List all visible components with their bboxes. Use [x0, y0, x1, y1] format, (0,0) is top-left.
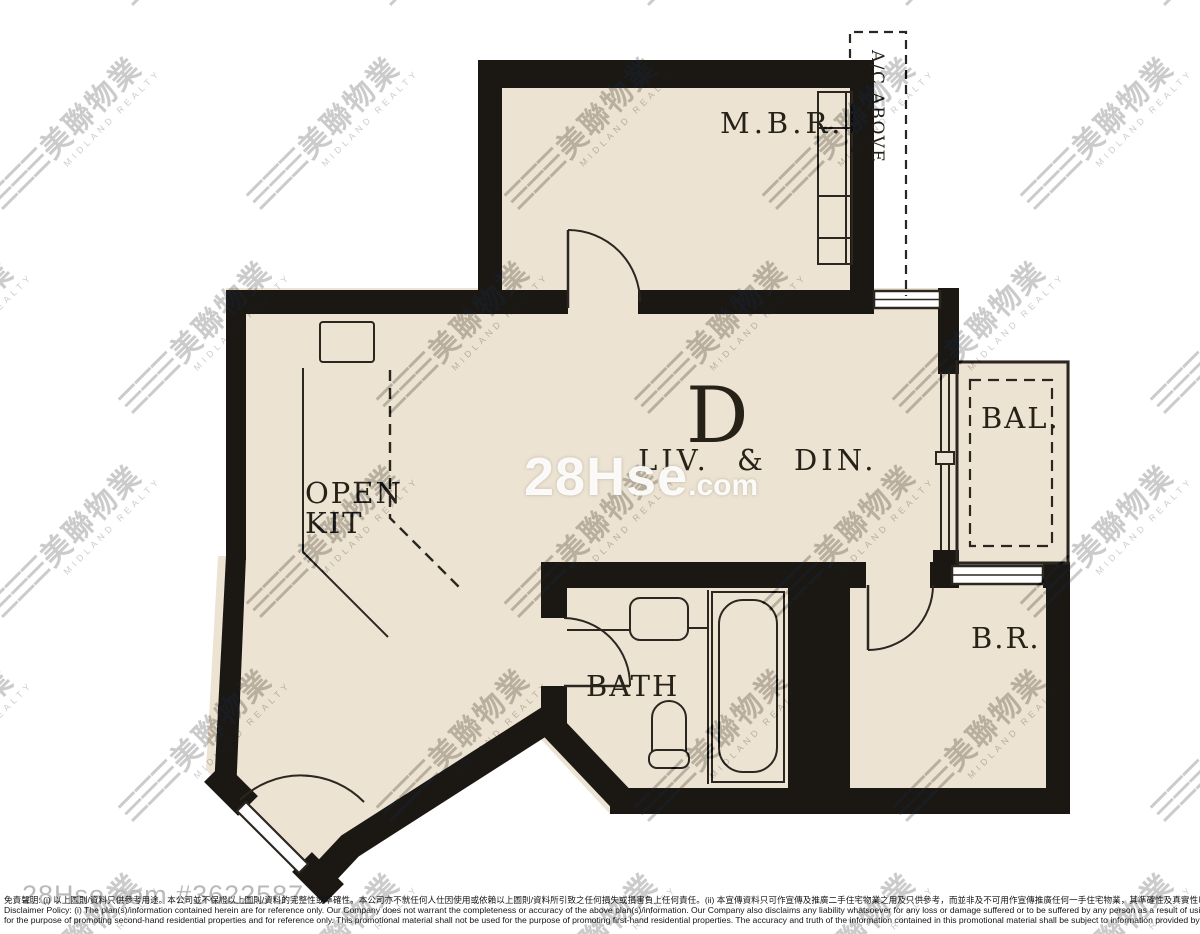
wall-right-lower: [1046, 562, 1070, 814]
room-label-openkit-1: OPEN: [305, 476, 403, 510]
window-living-north: [874, 291, 940, 308]
wall-bath-br-divider: [788, 562, 850, 792]
room-label-balcony: BAL.: [981, 401, 1060, 435]
room-label-mbr: M.B.R.: [720, 106, 845, 140]
window-bedroom: [952, 566, 1043, 584]
wall-kitchen-left: [226, 290, 246, 560]
wall-br-top-a: [848, 562, 866, 588]
wall-top-band-right: [638, 290, 874, 314]
disclaimer-line-en-2: for the purpose of promoting second-hand…: [4, 916, 1198, 926]
wall-mbr-top: [478, 60, 874, 88]
room-label-openkit-2: KIT: [305, 506, 363, 540]
room-label-bedroom: B.R.: [971, 621, 1041, 655]
wall-mbr-left: [478, 60, 502, 312]
wall-bath-left-lower: [541, 686, 567, 732]
disclaimer: 免責聲明: (i) 以上圖則/資料只供參考用途。本公司並不保證以上圖則/資料的完…: [4, 896, 1198, 925]
floorplan-drawing: D LIV. & DIN. M.B.R. OPEN KIT BATH BAL. …: [0, 0, 1200, 934]
wall-bottom: [610, 788, 1070, 814]
room-label-ac-above: A/C ABOVE: [867, 49, 887, 163]
wall-bath-left-upper: [541, 586, 567, 618]
wall-top-band-left: [226, 290, 568, 314]
room-label-living: LIV. & DIN.: [638, 443, 878, 477]
room-label-bath: BATH: [586, 669, 679, 703]
floorplan-page: D LIV. & DIN. M.B.R. OPEN KIT BATH BAL. …: [0, 0, 1200, 934]
wall-bath-top: [541, 562, 797, 588]
